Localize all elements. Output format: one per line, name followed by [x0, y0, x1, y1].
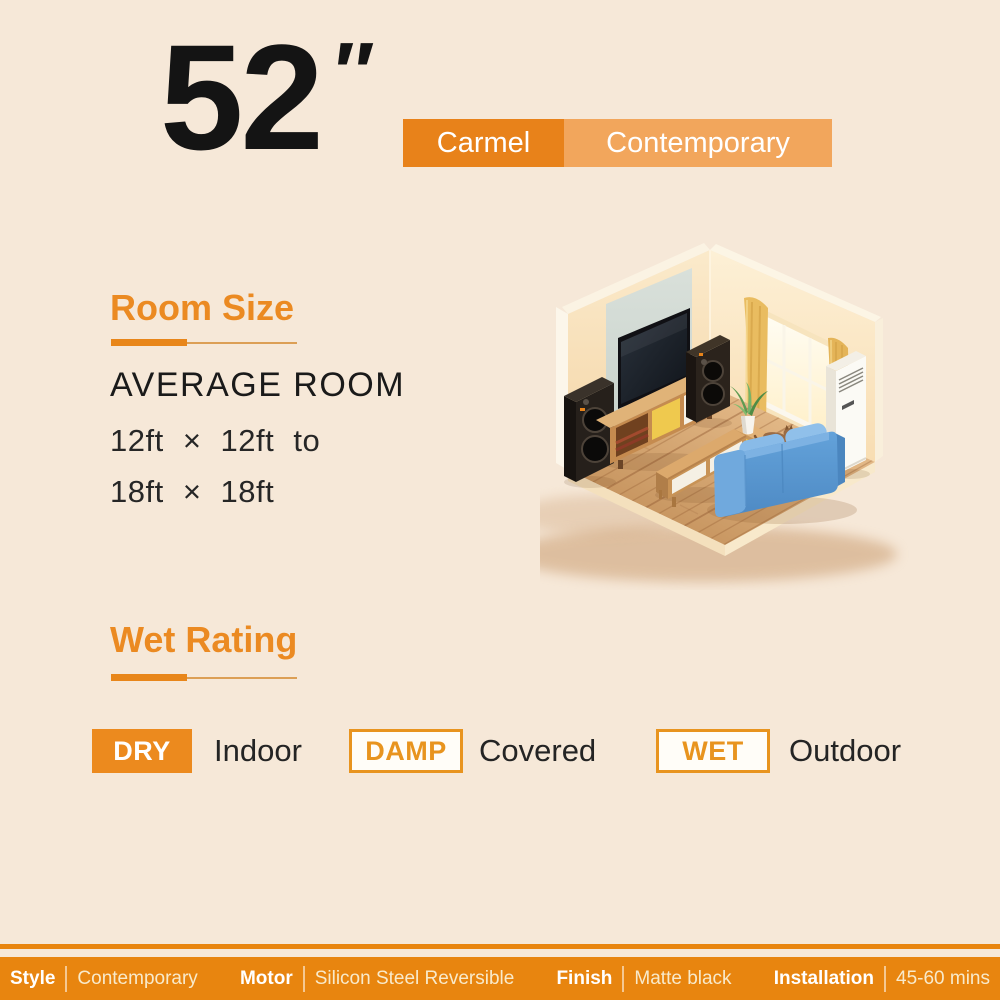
underline-line [187, 677, 297, 679]
dry-badge: DRY [92, 729, 192, 773]
spec-divider [622, 966, 624, 992]
underline-bar [111, 674, 187, 681]
header-badges: Carmel Contemporary [403, 119, 832, 167]
average-room-label: AVERAGE ROOM [110, 368, 405, 402]
room-range-line2: 18ft × 18ft [110, 476, 274, 507]
spec-label: Style [10, 968, 55, 990]
spec-label: Installation [774, 968, 874, 990]
wet-badge: WET [656, 729, 770, 773]
spec-divider [303, 966, 305, 992]
spec-finish: Finish Matte black [556, 966, 731, 992]
room-size-title: Room Size [110, 290, 294, 326]
wet-rating-title: Wet Rating [110, 622, 297, 658]
room-size-underline [111, 339, 297, 347]
damp-badge: DAMP [349, 729, 463, 773]
footer-spec-bar: Style Contemporary Motor Silicon Steel R… [0, 957, 1000, 1000]
spec-label: Motor [240, 968, 293, 990]
spec-value: Matte black [634, 968, 731, 990]
spec-style: Style Contemporary [10, 966, 198, 992]
infographic-canvas: 52 ″ Carmel Contemporary Room Size AVERA… [0, 0, 1000, 1000]
footer-accent-line [0, 944, 1000, 949]
covered-label: Covered [479, 729, 596, 773]
outdoor-label: Outdoor [789, 729, 901, 773]
spec-divider [884, 966, 886, 992]
spec-value: 45-60 mins [896, 968, 990, 990]
spec-divider [65, 966, 67, 992]
spec-motor: Motor Silicon Steel Reversible [240, 966, 514, 992]
living-room-svg [540, 190, 960, 590]
fan-size: 52 [160, 22, 321, 172]
underline-bar [111, 339, 187, 346]
floor-speaker-left [564, 377, 614, 482]
fan-size-inches-mark: ″ [330, 30, 370, 114]
spec-value: Silicon Steel Reversible [315, 968, 515, 990]
spec-label: Finish [556, 968, 612, 990]
spec-value: Contemporary [77, 968, 197, 990]
underline-line [187, 342, 297, 344]
living-room-illustration [540, 190, 960, 590]
room-range-line1: 12ft × 12ft to [110, 425, 320, 456]
model-badge: Carmel [403, 119, 564, 167]
indoor-label: Indoor [214, 729, 302, 773]
spec-installation: Installation 45-60 mins [774, 966, 990, 992]
wet-rating-underline [111, 674, 297, 682]
style-badge: Contemporary [564, 119, 832, 167]
